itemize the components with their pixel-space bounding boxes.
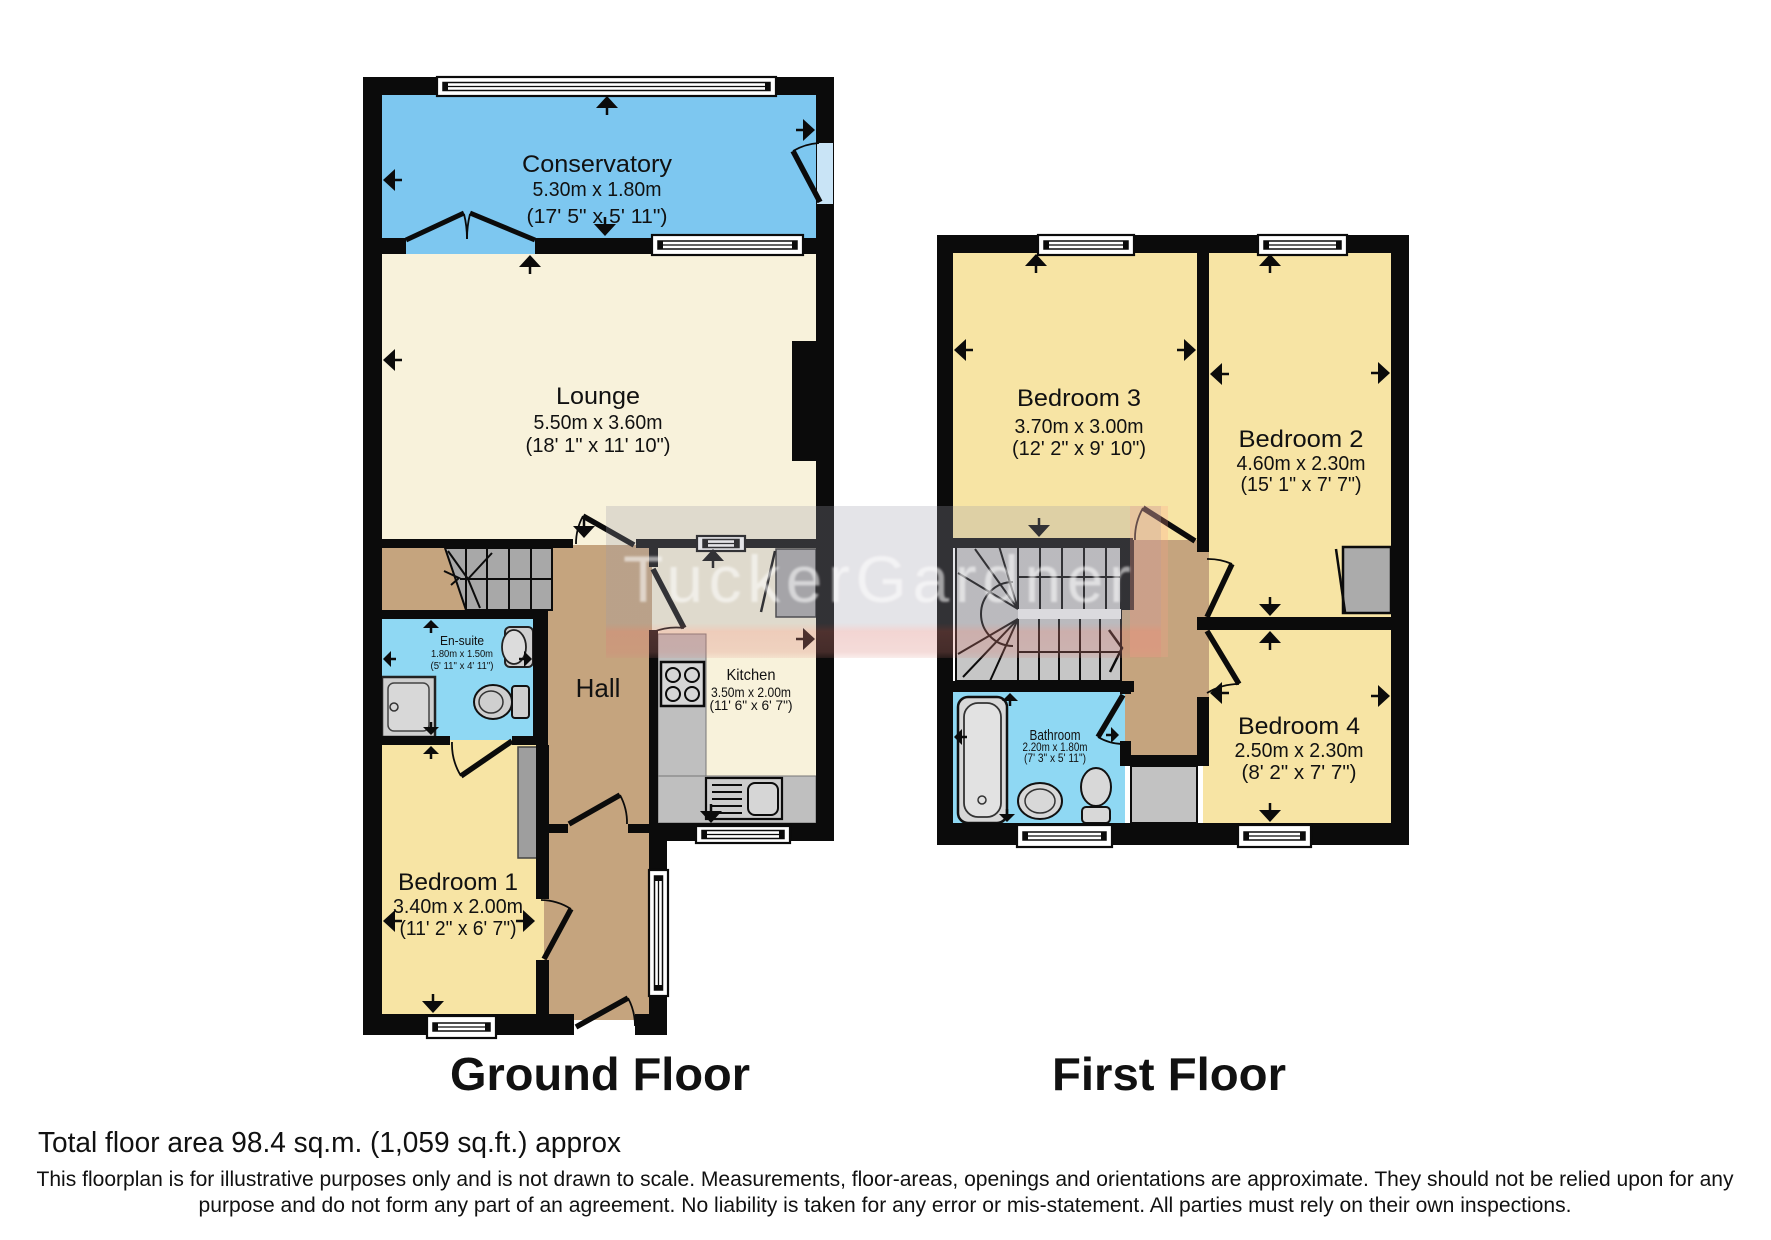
svg-text:This floorplan is for illustra: This floorplan is for illustrative purpo…: [37, 1167, 1734, 1191]
svg-text:Bedroom 2: Bedroom 2: [1239, 426, 1364, 453]
svg-text:3.70m x 3.00m: 3.70m x 3.00m: [1015, 416, 1144, 438]
svg-text:3.40m x 2.00m: 3.40m x 2.00m: [393, 896, 523, 918]
svg-text:Bedroom 4: Bedroom 4: [1238, 713, 1360, 740]
svg-text:(11' 2" x 6' 7"): (11' 2" x 6' 7"): [400, 918, 517, 940]
svg-text:Hall: Hall: [576, 673, 621, 703]
svg-text:purpose and do not form any pa: purpose and do not form any part of an a…: [199, 1193, 1572, 1217]
svg-text:TuckerGardner: TuckerGardner: [623, 542, 1131, 616]
svg-text:2.50m x 2.30m: 2.50m x 2.30m: [1235, 740, 1364, 762]
svg-text:(8' 2" x 7' 7"): (8' 2" x 7' 7"): [1242, 762, 1357, 784]
svg-text:(17' 5" x 5' 11"): (17' 5" x 5' 11"): [527, 206, 668, 228]
svg-text:(5' 11" x 4' 11"): (5' 11" x 4' 11"): [431, 661, 494, 672]
svg-text:(7' 3" x 5' 11"): (7' 3" x 5' 11"): [1024, 751, 1086, 765]
svg-text:1.80m x 1.50m: 1.80m x 1.50m: [431, 649, 493, 660]
svg-text:Ground Floor: Ground Floor: [450, 1048, 750, 1100]
svg-text:En-suite: En-suite: [440, 634, 484, 648]
svg-text:Conservatory: Conservatory: [522, 151, 672, 178]
svg-text:Bedroom 3: Bedroom 3: [1017, 385, 1141, 412]
svg-text:Lounge: Lounge: [556, 383, 640, 410]
svg-text:5.30m x 1.80m: 5.30m x 1.80m: [533, 179, 662, 201]
svg-text:(11' 6" x 6' 7"): (11' 6" x 6' 7"): [710, 697, 793, 713]
svg-text:(18' 1" x 11' 10"): (18' 1" x 11' 10"): [526, 435, 671, 457]
svg-text:(15' 1" x 7' 7"): (15' 1" x 7' 7"): [1241, 474, 1362, 496]
svg-text:First Floor: First Floor: [1052, 1048, 1286, 1100]
svg-text:Total floor area 98.4 sq.m. (1: Total floor area 98.4 sq.m. (1,059 sq.ft…: [38, 1127, 621, 1159]
svg-text:4.60m x 2.30m: 4.60m x 2.30m: [1237, 453, 1366, 475]
svg-text:Bedroom 1: Bedroom 1: [398, 869, 518, 896]
svg-text:Kitchen: Kitchen: [727, 667, 776, 684]
svg-text:(12' 2" x 9' 10"): (12' 2" x 9' 10"): [1012, 438, 1146, 460]
svg-text:5.50m x 3.60m: 5.50m x 3.60m: [534, 412, 663, 434]
